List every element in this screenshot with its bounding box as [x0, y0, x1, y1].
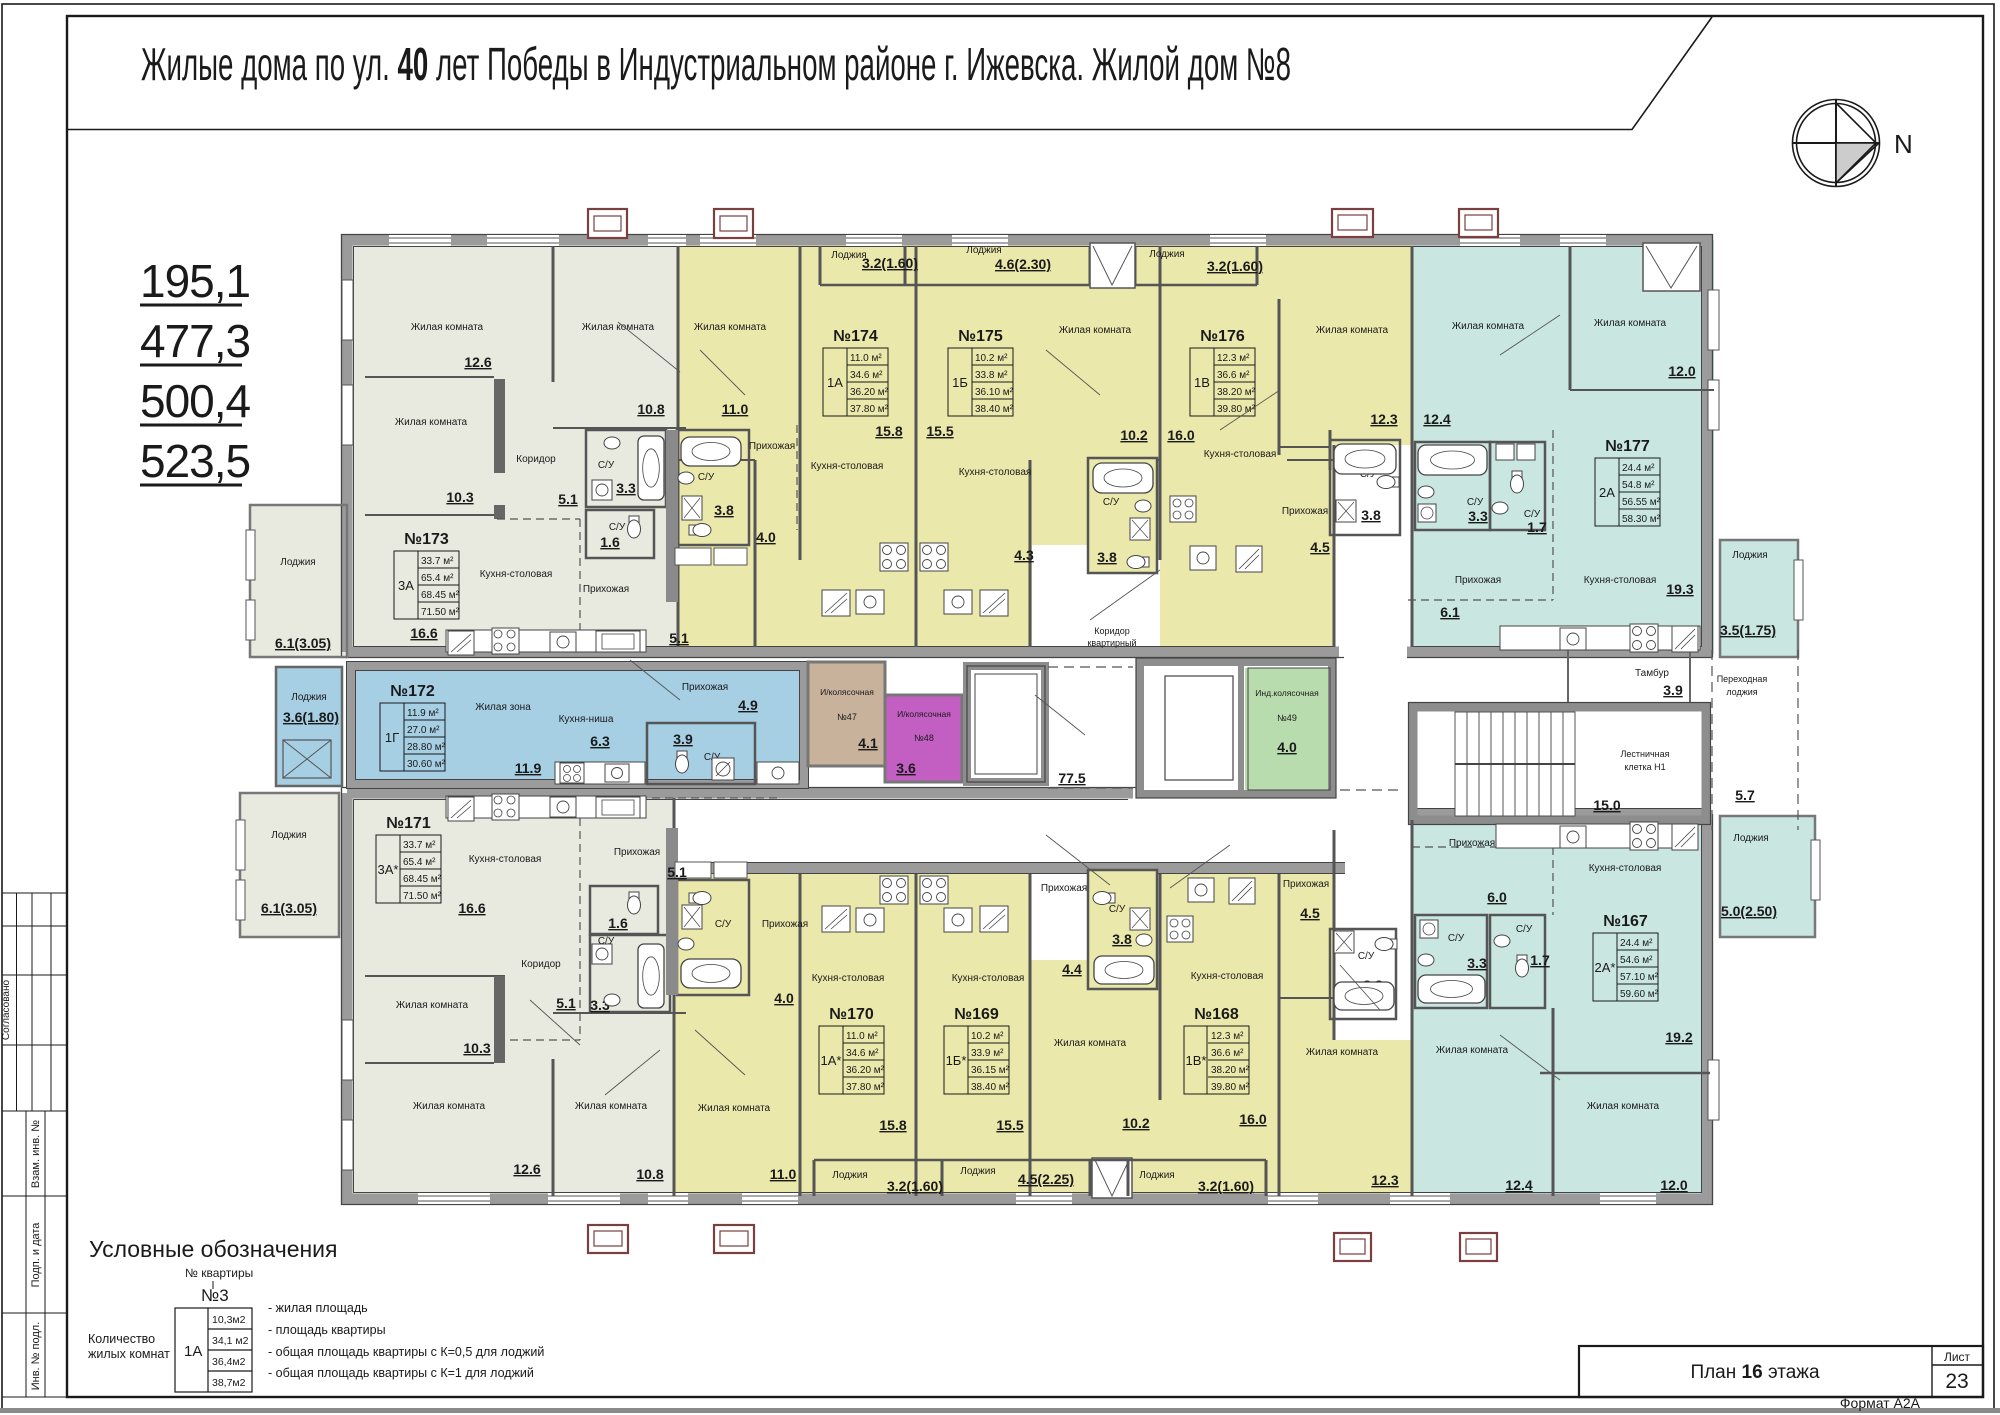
- svg-text:Инд.колясочная: Инд.колясочная: [1255, 688, 1319, 698]
- svg-text:Прихожая: Прихожая: [1449, 838, 1495, 849]
- svg-text:68.45 м²: 68.45 м²: [421, 590, 460, 601]
- svg-text:Жилая комната: Жилая комната: [1452, 321, 1525, 332]
- svg-text:№172: №172: [390, 683, 435, 700]
- svg-text:№168: №168: [1194, 1006, 1239, 1023]
- svg-text:19.2: 19.2: [1665, 1029, 1692, 1045]
- svg-text:24.4 м²: 24.4 м²: [1620, 938, 1653, 949]
- svg-text:10.2: 10.2: [1120, 427, 1147, 443]
- svg-text:1Б: 1Б: [952, 375, 968, 390]
- svg-text:1.7: 1.7: [1530, 952, 1550, 968]
- svg-text:И/колясочная: И/колясочная: [897, 709, 951, 719]
- svg-text:1.6: 1.6: [608, 915, 628, 931]
- svg-text:16.6: 16.6: [458, 900, 485, 916]
- svg-text:Жилая комната: Жилая комната: [1316, 325, 1389, 336]
- svg-text:1А: 1А: [184, 1343, 202, 1360]
- svg-text:11.0: 11.0: [722, 401, 749, 417]
- svg-text:С/У: С/У: [598, 460, 615, 471]
- svg-text:№3: №3: [201, 1286, 229, 1305]
- svg-text:3.3: 3.3: [616, 480, 636, 496]
- svg-text:4.9: 4.9: [738, 697, 758, 713]
- svg-text:3.2(1.60): 3.2(1.60): [1207, 258, 1263, 274]
- svg-text:№48: №48: [914, 733, 934, 743]
- svg-text:38.40 м²: 38.40 м²: [971, 1082, 1010, 1093]
- svg-text:Лоджия: Лоджия: [966, 245, 1001, 256]
- svg-text:Жилые дома по ул. 40 лет Побед: Жилые дома по ул. 40 лет Победы в Индуст…: [141, 38, 1291, 90]
- svg-text:12.4: 12.4: [1423, 411, 1450, 427]
- svg-text:36,4м2: 36,4м2: [212, 1356, 246, 1368]
- svg-text:15.0: 15.0: [1593, 797, 1620, 813]
- svg-text:Прихожая: Прихожая: [682, 682, 728, 693]
- svg-text:Кухня-столовая: Кухня-столовая: [952, 973, 1025, 984]
- svg-text:- площадь квартиры: - площадь квартиры: [268, 1323, 386, 1337]
- svg-text:Жилая комната: Жилая комната: [1059, 325, 1132, 336]
- svg-text:38,7м2: 38,7м2: [212, 1377, 246, 1389]
- svg-text:1В: 1В: [1194, 375, 1210, 390]
- svg-text:39.80 м²: 39.80 м²: [1217, 404, 1256, 415]
- svg-text:Жилая комната: Жилая комната: [1587, 1101, 1660, 1112]
- svg-text:- жилая площадь: - жилая площадь: [268, 1301, 368, 1315]
- svg-text:68.45 м²: 68.45 м²: [403, 874, 442, 885]
- svg-text:3А*: 3А*: [378, 862, 399, 877]
- svg-text:3.5(1.75): 3.5(1.75): [1720, 622, 1776, 638]
- svg-text:1А: 1А: [827, 375, 843, 390]
- svg-text:3.9: 3.9: [1663, 682, 1683, 698]
- svg-text:Лоджия: Лоджия: [1733, 833, 1768, 844]
- svg-text:Жилая комната: Жилая комната: [582, 322, 655, 333]
- svg-text:10.2: 10.2: [1122, 1115, 1149, 1131]
- svg-text:15.8: 15.8: [879, 1117, 906, 1133]
- svg-text:Кухня-столовая: Кухня-столовая: [469, 854, 542, 865]
- svg-text:- общая площадь квартиры с К=: - общая площадь квартиры с К=0,5 для лод…: [268, 1345, 544, 1359]
- svg-text:№170: №170: [829, 1006, 874, 1023]
- svg-text:12.3 м²: 12.3 м²: [1211, 1031, 1244, 1042]
- svg-text:58.30 м²: 58.30 м²: [1622, 514, 1661, 525]
- svg-text:3А: 3А: [398, 578, 414, 593]
- svg-text:10.3: 10.3: [446, 489, 473, 505]
- svg-text:1Б*: 1Б*: [946, 1053, 967, 1068]
- svg-text:Кухня-столовая: Кухня-столовая: [1584, 575, 1657, 586]
- svg-text:Жилая комната: Жилая комната: [395, 417, 468, 428]
- svg-text:Лоджия: Лоджия: [1149, 249, 1184, 260]
- svg-text:6.0: 6.0: [1487, 889, 1507, 905]
- svg-text:И/колясочная: И/колясочная: [820, 687, 874, 697]
- svg-text:Жилая комната: Жилая комната: [1436, 1045, 1509, 1056]
- svg-text:Кухня-столовая: Кухня-столовая: [1204, 449, 1277, 460]
- svg-text:№173: №173: [404, 531, 449, 548]
- svg-text:15.5: 15.5: [996, 1117, 1023, 1133]
- svg-text:33.9 м²: 33.9 м²: [971, 1048, 1004, 1059]
- svg-text:Кухня-столовая: Кухня-столовая: [959, 467, 1032, 478]
- svg-text:Жилая комната: Жилая комната: [1306, 1047, 1379, 1058]
- svg-text:23: 23: [1945, 1370, 1968, 1393]
- svg-text:1.6: 1.6: [600, 534, 620, 550]
- svg-text:3.8: 3.8: [1112, 931, 1132, 947]
- svg-text:12.6: 12.6: [513, 1161, 540, 1177]
- svg-text:Коридор: Коридор: [1094, 626, 1130, 636]
- svg-text:№174: №174: [833, 328, 878, 345]
- svg-text:16.6: 16.6: [410, 625, 437, 641]
- svg-text:Жилая комната: Жилая комната: [396, 1000, 469, 1011]
- svg-text:Кухня-столовая: Кухня-столовая: [812, 973, 885, 984]
- svg-text:Жилая комната: Жилая комната: [413, 1101, 486, 1112]
- svg-text:Переходная: Переходная: [1717, 674, 1768, 684]
- svg-text:36.6 м²: 36.6 м²: [1217, 370, 1250, 381]
- svg-text:3.6(1.80): 3.6(1.80): [283, 709, 339, 725]
- svg-text:Лоджия: Лоджия: [280, 557, 315, 568]
- svg-text:С/У: С/У: [1448, 933, 1465, 944]
- svg-text:6.1(3.05): 6.1(3.05): [275, 635, 331, 651]
- svg-text:Жилая комната: Жилая комната: [411, 322, 484, 333]
- svg-text:4.3: 4.3: [1014, 547, 1034, 563]
- svg-text:Прихожая: Прихожая: [762, 919, 808, 930]
- svg-text:37.80 м²: 37.80 м²: [850, 404, 889, 415]
- svg-text:33.7 м²: 33.7 м²: [403, 840, 436, 851]
- svg-text:12.3 м²: 12.3 м²: [1217, 353, 1250, 364]
- svg-text:38.40 м²: 38.40 м²: [975, 404, 1014, 415]
- svg-text:№177: №177: [1605, 438, 1650, 455]
- svg-text:16.0: 16.0: [1239, 1111, 1266, 1127]
- svg-text:Кухня-ниша: Кухня-ниша: [559, 714, 614, 725]
- svg-text:12.6: 12.6: [464, 354, 491, 370]
- svg-text:36.15 м²: 36.15 м²: [971, 1065, 1010, 1076]
- svg-text:Прихожая: Прихожая: [1282, 506, 1328, 517]
- svg-text:3.8: 3.8: [714, 502, 734, 518]
- svg-text:10.2 м²: 10.2 м²: [975, 353, 1008, 364]
- svg-text:5.7: 5.7: [1735, 787, 1755, 803]
- svg-text:Лоджия: Лоджия: [1732, 550, 1767, 561]
- svg-text:№167: №167: [1603, 913, 1648, 930]
- svg-text:10,3м2: 10,3м2: [212, 1314, 246, 1326]
- svg-text:10.8: 10.8: [636, 1166, 663, 1182]
- svg-text:24.4 м²: 24.4 м²: [1622, 463, 1655, 474]
- svg-text:2А: 2А: [1599, 485, 1615, 500]
- svg-text:11.0 м²: 11.0 м²: [846, 1031, 878, 1042]
- svg-text:30.60 м²: 30.60 м²: [407, 759, 446, 770]
- svg-text:4.1: 4.1: [858, 735, 878, 751]
- svg-text:6.1: 6.1: [1440, 604, 1460, 620]
- svg-text:65.4 м²: 65.4 м²: [421, 573, 454, 584]
- svg-text:С/У: С/У: [1516, 924, 1533, 935]
- svg-text:3.3: 3.3: [1468, 508, 1488, 524]
- svg-text:Кухня-столовая: Кухня-столовая: [480, 569, 553, 580]
- svg-text:С/У: С/У: [715, 919, 732, 930]
- svg-text:36.20 м²: 36.20 м²: [846, 1065, 885, 1076]
- svg-text:4.5: 4.5: [1300, 905, 1320, 921]
- svg-text:5.1: 5.1: [667, 864, 687, 880]
- svg-text:3.9: 3.9: [673, 731, 693, 747]
- svg-text:Лоджия: Лоджия: [271, 830, 306, 841]
- svg-text:4.6(2.30): 4.6(2.30): [995, 256, 1051, 272]
- svg-text:План 16 этажа: План 16 этажа: [1690, 1362, 1820, 1383]
- svg-text:Инв. № подл.: Инв. № подл.: [30, 1322, 42, 1391]
- svg-text:3.2(1.60): 3.2(1.60): [1198, 1178, 1254, 1194]
- svg-text:Жилая комната: Жилая комната: [1054, 1038, 1127, 1049]
- svg-text:3.8: 3.8: [1361, 507, 1381, 523]
- svg-text:16.0: 16.0: [1167, 427, 1194, 443]
- svg-text:4.0: 4.0: [1277, 739, 1297, 755]
- svg-text:Прихожая: Прихожая: [1041, 883, 1087, 894]
- svg-text:15.5: 15.5: [926, 423, 953, 439]
- svg-text:3.3: 3.3: [1467, 955, 1487, 971]
- svg-text:лоджия: лоджия: [1726, 687, 1757, 697]
- svg-text:12.3: 12.3: [1370, 411, 1397, 427]
- svg-text:33.8 м²: 33.8 м²: [975, 370, 1008, 381]
- svg-text:Лестничная: Лестничная: [1620, 749, 1669, 759]
- svg-text:1.7: 1.7: [1527, 519, 1547, 535]
- svg-text:56.55 м²: 56.55 м²: [1622, 497, 1661, 508]
- svg-text:65.4 м²: 65.4 м²: [403, 857, 436, 868]
- svg-text:Кухня-столовая: Кухня-столовая: [1589, 863, 1662, 874]
- svg-text:12.0: 12.0: [1660, 1177, 1687, 1193]
- svg-text:4.5: 4.5: [1310, 539, 1330, 555]
- svg-text:С/У: С/У: [609, 522, 626, 533]
- svg-text:С/У: С/У: [1103, 497, 1120, 508]
- svg-text:№175: №175: [958, 328, 1003, 345]
- svg-text:Лоджия: Лоджия: [1139, 1170, 1174, 1181]
- svg-text:54.8 м²: 54.8 м²: [1622, 480, 1655, 491]
- svg-text:4.0: 4.0: [756, 529, 776, 545]
- svg-text:59.60 м²: 59.60 м²: [1620, 989, 1659, 1000]
- svg-text:36.20 м²: 36.20 м²: [850, 387, 889, 398]
- svg-text:1В*: 1В*: [1186, 1053, 1207, 1068]
- svg-text:Условные обозначения: Условные обозначения: [89, 1236, 338, 1262]
- svg-text:10.8: 10.8: [637, 401, 664, 417]
- svg-text:№47: №47: [837, 712, 857, 722]
- svg-text:Прихожая: Прихожая: [749, 441, 795, 452]
- svg-text:Жилая комната: Жилая комната: [575, 1101, 648, 1112]
- svg-text:4.5(2.25): 4.5(2.25): [1018, 1171, 1074, 1187]
- svg-text:11.9: 11.9: [515, 760, 542, 776]
- svg-text:Жилая комната: Жилая комната: [694, 322, 767, 333]
- svg-text:34,1 м2: 34,1 м2: [212, 1335, 249, 1347]
- svg-text:12.4: 12.4: [1505, 1177, 1532, 1193]
- svg-text:477,3: 477,3: [140, 315, 250, 367]
- svg-text:3.2(1.60): 3.2(1.60): [862, 255, 918, 271]
- svg-text:11.0 м²: 11.0 м²: [850, 353, 882, 364]
- svg-text:4.4: 4.4: [1062, 961, 1082, 977]
- svg-text:37.80 м²: 37.80 м²: [846, 1082, 885, 1093]
- svg-text:36.6 м²: 36.6 м²: [1211, 1048, 1244, 1059]
- svg-text:6.3: 6.3: [590, 733, 610, 749]
- svg-text:Согласовано: Согласовано: [1, 980, 12, 1041]
- svg-text:5.1: 5.1: [558, 491, 578, 507]
- svg-text:Количество: Количество: [88, 1332, 155, 1346]
- svg-text:Формат А2А: Формат А2А: [1840, 1395, 1921, 1411]
- svg-text:№49: №49: [1277, 713, 1297, 723]
- svg-text:Прихожая: Прихожая: [614, 847, 660, 858]
- svg-text:27.0 м²: 27.0 м²: [407, 725, 440, 736]
- svg-text:Коридор: Коридор: [516, 454, 556, 465]
- svg-text:5.0(2.50): 5.0(2.50): [1721, 903, 1777, 919]
- svg-text:38.20 м²: 38.20 м²: [1217, 387, 1256, 398]
- svg-text:Коридор: Коридор: [521, 959, 561, 970]
- svg-text:N: N: [1894, 129, 1913, 159]
- svg-text:Прихожая: Прихожая: [1283, 879, 1329, 890]
- svg-text:№169: №169: [954, 1006, 999, 1023]
- svg-text:- общая площадь квартиры с К=: - общая площадь квартиры с К=1 для лоджи…: [268, 1366, 534, 1380]
- svg-text:5.1: 5.1: [556, 995, 576, 1011]
- svg-text:195,1: 195,1: [140, 255, 250, 307]
- svg-text:28.80 м²: 28.80 м²: [407, 742, 446, 753]
- svg-text:Жилая комната: Жилая комната: [698, 1103, 771, 1114]
- svg-text:Прихожая: Прихожая: [583, 584, 629, 595]
- svg-text:71.50 м²: 71.50 м²: [403, 891, 442, 902]
- svg-text:Лоджия: Лоджия: [291, 692, 326, 703]
- svg-text:57.10 м²: 57.10 м²: [1620, 972, 1659, 983]
- svg-text:Кухня-столовая: Кухня-столовая: [811, 461, 884, 472]
- svg-text:34.6 м²: 34.6 м²: [846, 1048, 879, 1059]
- svg-text:54.6 м²: 54.6 м²: [1620, 955, 1653, 966]
- svg-text:33.7 м²: 33.7 м²: [421, 556, 454, 567]
- svg-text:39.80 м²: 39.80 м²: [1211, 1082, 1250, 1093]
- svg-text:3.6: 3.6: [896, 760, 916, 776]
- svg-text:6.1(3.05): 6.1(3.05): [261, 900, 317, 916]
- svg-text:Лист: Лист: [1944, 1350, 1971, 1364]
- svg-text:71.50 м²: 71.50 м²: [421, 607, 460, 618]
- svg-text:№176: №176: [1200, 328, 1245, 345]
- svg-text:Подп. и дата: Подп. и дата: [30, 1222, 42, 1288]
- svg-text:10.2 м²: 10.2 м²: [971, 1031, 1004, 1042]
- svg-text:Жилая комната: Жилая комната: [1594, 318, 1667, 329]
- svg-text:Жилая зона: Жилая зона: [475, 702, 531, 713]
- svg-text:Лоджия: Лоджия: [960, 1166, 995, 1177]
- svg-text:3.8: 3.8: [1097, 549, 1117, 565]
- svg-text:15.8: 15.8: [875, 423, 902, 439]
- svg-text:36.10 м²: 36.10 м²: [975, 387, 1014, 398]
- svg-text:1Г: 1Г: [385, 730, 399, 745]
- svg-text:77.5: 77.5: [1058, 770, 1085, 786]
- svg-text:Взам. инв. №: Взам. инв. №: [30, 1120, 42, 1188]
- svg-text:11.0: 11.0: [770, 1166, 797, 1182]
- svg-text:Прихожая: Прихожая: [1455, 575, 1501, 586]
- svg-text:С/У: С/У: [1467, 497, 1484, 508]
- svg-text:12.3: 12.3: [1371, 1172, 1398, 1188]
- svg-text:С/У: С/У: [1109, 904, 1126, 915]
- svg-text:1А*: 1А*: [821, 1053, 842, 1068]
- svg-text:11.9 м²: 11.9 м²: [407, 708, 439, 719]
- svg-text:жилых комнат: жилых комнат: [88, 1347, 170, 1361]
- svg-text:2А*: 2А*: [1595, 960, 1616, 975]
- svg-text:С/У: С/У: [698, 472, 715, 483]
- svg-text:10.3: 10.3: [463, 1040, 490, 1056]
- svg-text:С/У: С/У: [1358, 951, 1375, 962]
- svg-text:5.1: 5.1: [669, 630, 689, 646]
- svg-text:клетка Н1: клетка Н1: [1624, 762, 1665, 772]
- svg-text:34.6 м²: 34.6 м²: [850, 370, 883, 381]
- svg-text:4.0: 4.0: [774, 990, 794, 1006]
- svg-text:Кухня-столовая: Кухня-столовая: [1191, 971, 1264, 982]
- svg-text:38.20 м²: 38.20 м²: [1211, 1065, 1250, 1076]
- svg-text:3.2(1.60): 3.2(1.60): [887, 1178, 943, 1194]
- svg-text:№ квартиры: № квартиры: [185, 1266, 253, 1280]
- svg-text:квартирный: квартирный: [1087, 638, 1136, 648]
- svg-text:12.0: 12.0: [1668, 363, 1695, 379]
- svg-text:500,4: 500,4: [140, 375, 251, 427]
- svg-text:523,5: 523,5: [140, 435, 250, 487]
- svg-text:Лоджия: Лоджия: [832, 1170, 867, 1181]
- svg-text:Тамбур: Тамбур: [1635, 667, 1669, 679]
- svg-text:№171: №171: [386, 815, 431, 832]
- svg-text:19.3: 19.3: [1666, 581, 1693, 597]
